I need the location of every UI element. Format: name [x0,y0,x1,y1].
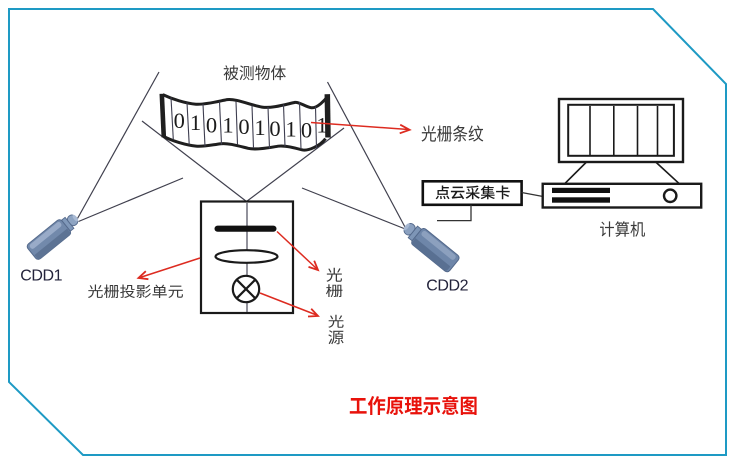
svg-text:0: 0 [206,113,217,138]
svg-text:0: 0 [238,114,249,139]
svg-text:1: 1 [285,116,296,141]
svg-text:1: 1 [316,113,327,138]
svg-text:0: 0 [269,116,280,141]
svg-text:CDD2: CDD2 [426,278,468,295]
svg-text:1: 1 [222,113,233,138]
svg-text:CDD1: CDD1 [20,267,62,284]
svg-text:1: 1 [190,110,201,135]
svg-text:1: 1 [254,115,265,140]
svg-text:0: 0 [174,108,185,133]
svg-text:0: 0 [301,118,312,143]
